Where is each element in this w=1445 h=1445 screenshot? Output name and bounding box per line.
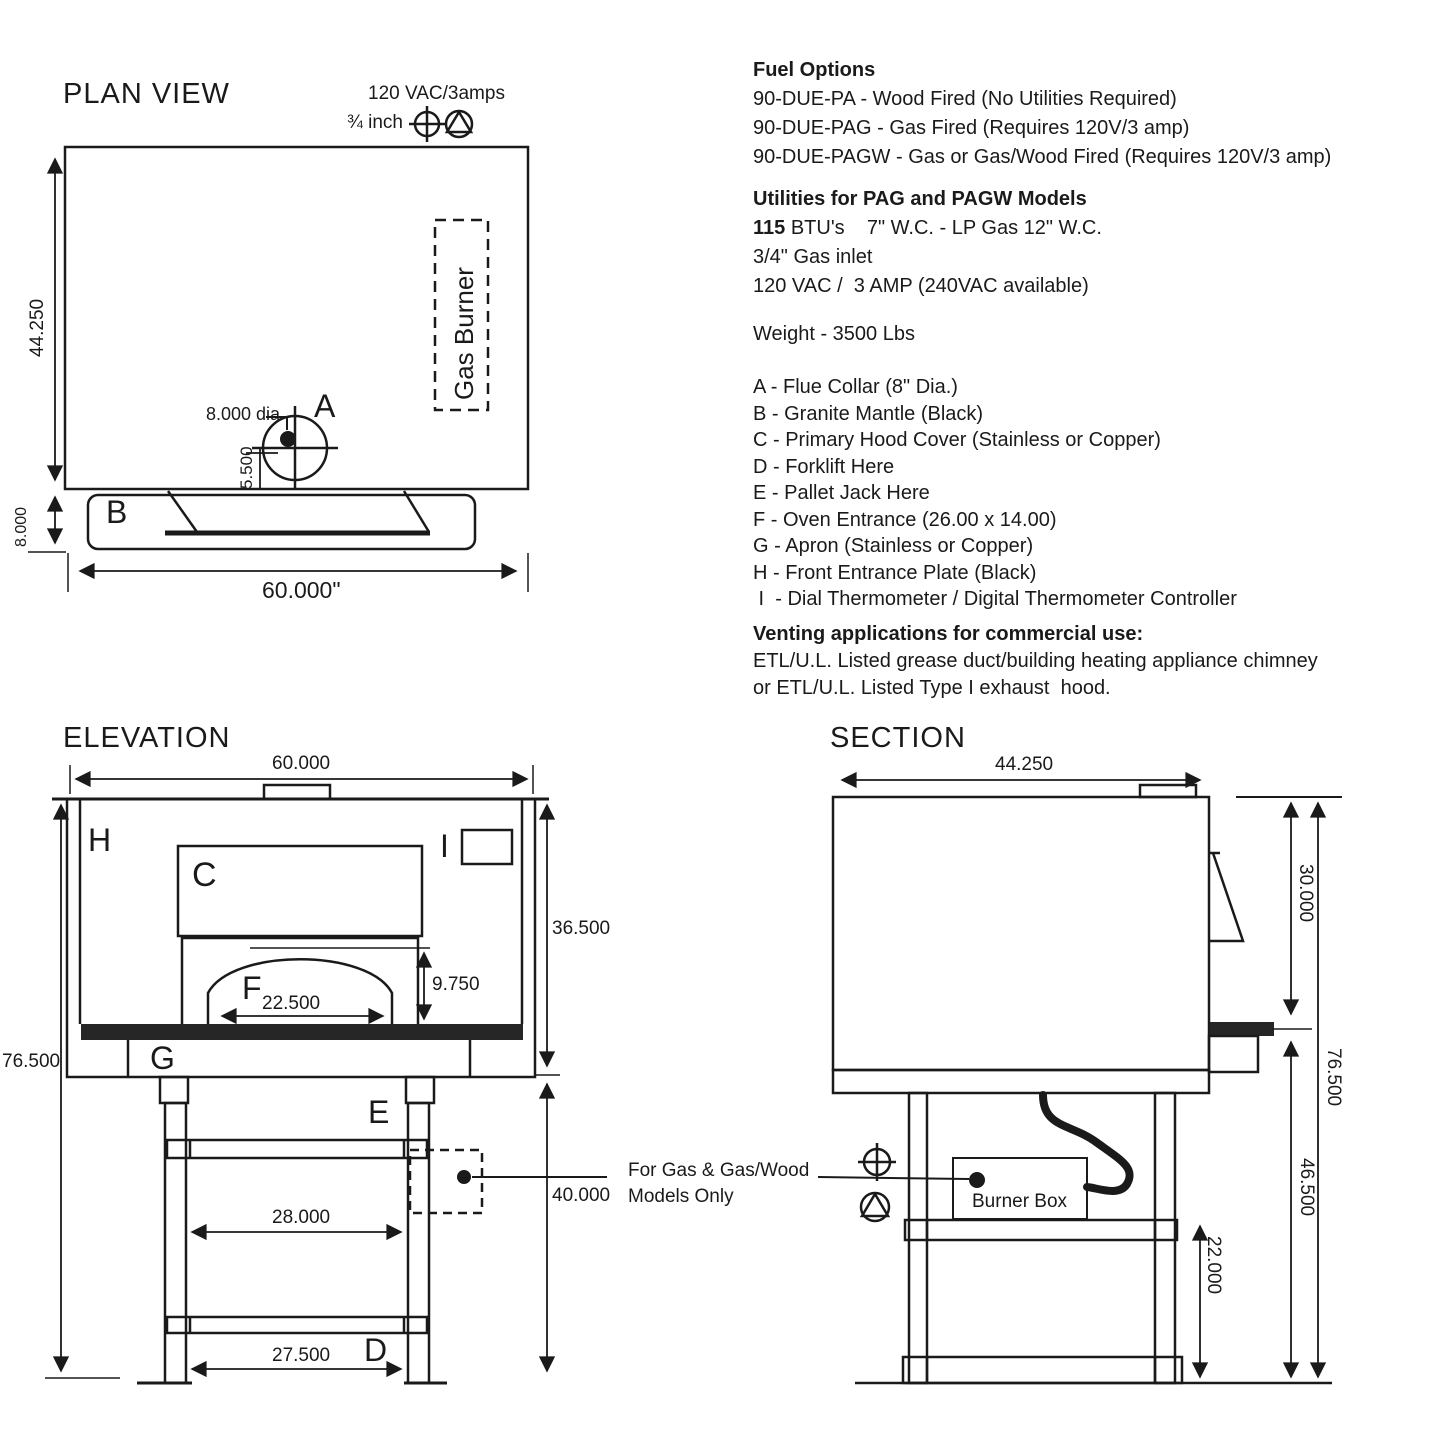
- section-depth-dim: 44.250: [995, 754, 1053, 776]
- burner-box-label: Burner Box: [972, 1191, 1067, 1213]
- flue-diameter-label: 8.000 dia: [206, 404, 280, 425]
- entrance-height-dim: 9.750: [432, 974, 480, 996]
- section-stand-height-dim: 46.500: [1295, 1158, 1317, 1180]
- elevation-total-height-dim: 76.500: [2, 1051, 60, 1073]
- forklift-letter: D: [364, 1332, 387, 1369]
- fuel-option-line: 90-DUE-PAG - Gas Fired (Requires 120V/3 …: [753, 114, 1433, 143]
- plan-power-label: 120 VAC/3amps: [368, 83, 505, 105]
- utilities-line: 3/4" Gas inlet: [753, 243, 1433, 272]
- section-drawing: [833, 780, 1342, 1383]
- dome-height-dim: 30.000: [1294, 864, 1316, 886]
- legend-item-g: G - Apron (Stainless or Copper): [753, 533, 1433, 560]
- gas-models-note-line2: Models Only: [628, 1186, 734, 1208]
- section-dimension-lines: [842, 780, 1318, 1377]
- section-apron-band: [833, 1070, 1209, 1093]
- fuel-options-title: Fuel Options: [753, 56, 1433, 85]
- elevation-dimension-lines: [45, 765, 560, 1378]
- legend-item-d: D - Forklift Here: [753, 454, 1433, 481]
- legend-item-b: B - Granite Mantle (Black): [753, 401, 1433, 428]
- btu-rest: BTU's 7" W.C. - LP Gas 12" W.C.: [785, 217, 1102, 239]
- elevation-width-dim: 60.000: [272, 753, 330, 775]
- burner-box-leader-dot: [969, 1172, 985, 1188]
- hood-cover-letter: C: [192, 856, 217, 895]
- legend-item-a: A - Flue Collar (8" Dia.): [753, 374, 1433, 401]
- legend-item-i: I - Dial Thermometer / Digital Thermomet…: [753, 586, 1433, 613]
- plan-gas-inlet-label: ¾ inch: [347, 112, 403, 134]
- venting-title: Venting applications for commercial use:: [753, 621, 1433, 648]
- stand-foot-width-dim: 27.500: [272, 1345, 330, 1367]
- entrance-width-dim: 22.500: [262, 993, 320, 1015]
- utilities-btu-line: 115 BTU's 7" W.C. - LP Gas 12" W.C.: [753, 214, 1433, 243]
- apron-letter: G: [150, 1040, 175, 1077]
- legend-item-h: H - Front Entrance Plate (Black): [753, 560, 1433, 587]
- spec-text-block: Fuel Options 90-DUE-PA - Wood Fired (No …: [753, 56, 1433, 702]
- pallet-jack-letter: E: [368, 1094, 389, 1131]
- electric-symbol-icon: [858, 1143, 896, 1181]
- section-mantle-step: [1209, 1036, 1258, 1072]
- flue-collar-letter: A: [314, 388, 335, 425]
- legend-item-e: E - Pallet Jack Here: [753, 480, 1433, 507]
- plan-mantle-outline: [88, 495, 475, 549]
- granite-mantle-bar: [81, 1024, 523, 1040]
- gas-models-note-line1: For Gas & Gas/Wood: [628, 1160, 809, 1182]
- electric-symbol-icon: [409, 106, 445, 142]
- flue-offset-dim: 5.500: [237, 446, 257, 489]
- section-total-height-dim: 76.500: [1322, 1048, 1344, 1070]
- front-plate-letter: H: [88, 822, 111, 859]
- utilities-line: 120 VAC / 3 AMP (240VAC available): [753, 272, 1433, 301]
- stand-inner-width-dim: 28.000: [272, 1207, 330, 1229]
- oven-height-dim: 36.500: [552, 918, 610, 940]
- thermometer-letter: I: [440, 828, 449, 865]
- gas-burner-label: Gas Burner: [449, 267, 480, 400]
- btu-value: 115: [753, 217, 785, 239]
- section-body-outline: [833, 797, 1209, 1070]
- section-title: SECTION: [830, 722, 966, 755]
- weight-line: Weight - 3500 Lbs: [753, 320, 1433, 349]
- plan-view-title: PLAN VIEW: [63, 78, 230, 111]
- shelf-height-dim: 22.000: [1202, 1236, 1224, 1258]
- mantle-letter: B: [106, 494, 127, 531]
- stand-height-dim: 40.000: [552, 1185, 610, 1207]
- burner-location-dashed-box: [410, 1150, 482, 1213]
- elevation-title: ELEVATION: [63, 722, 230, 755]
- gas-symbol-icon: [861, 1193, 889, 1221]
- legend-item-f: F - Oven Entrance (26.00 x 14.00): [753, 507, 1433, 534]
- section-flue-stub: [1140, 785, 1196, 797]
- thermometer-outline: [462, 830, 512, 864]
- utilities-title: Utilities for PAG and PAGW Models: [753, 185, 1433, 214]
- elevation-stand: [137, 1077, 447, 1383]
- oven-spec-sheet: PLAN VIEW 120 VAC/3amps ¾ inch Gas Burne…: [0, 0, 1445, 1445]
- section-mantle-bar: [1210, 1022, 1274, 1036]
- oven-door-flap: [1209, 853, 1243, 941]
- fuel-option-line: 90-DUE-PA - Wood Fired (No Utilities Req…: [753, 85, 1433, 114]
- venting-line: ETL/U.L. Listed grease duct/building hea…: [753, 648, 1433, 675]
- elevation-flue-stub: [264, 785, 330, 799]
- legend-item-c: C - Primary Hood Cover (Stainless or Cop…: [753, 427, 1433, 454]
- gas-symbol-icon: [446, 111, 472, 137]
- fuel-option-line: 90-DUE-PAGW - Gas or Gas/Wood Fired (Req…: [753, 143, 1433, 172]
- mantle-depth-dim: 8.000: [13, 507, 31, 547]
- section-stand: [903, 1093, 1182, 1383]
- venting-line: or ETL/U.L. Listed Type I exhaust hood.: [753, 675, 1433, 702]
- elevation-drawing: [45, 765, 969, 1383]
- plan-width-dim: 60.000": [262, 577, 341, 604]
- entrance-letter: F: [242, 970, 262, 1007]
- plan-entrance-plate: [165, 491, 430, 533]
- plan-depth-dim: 44.250: [27, 299, 49, 357]
- burner-leader-dot: [457, 1170, 471, 1184]
- note-leader-right: [818, 1177, 969, 1179]
